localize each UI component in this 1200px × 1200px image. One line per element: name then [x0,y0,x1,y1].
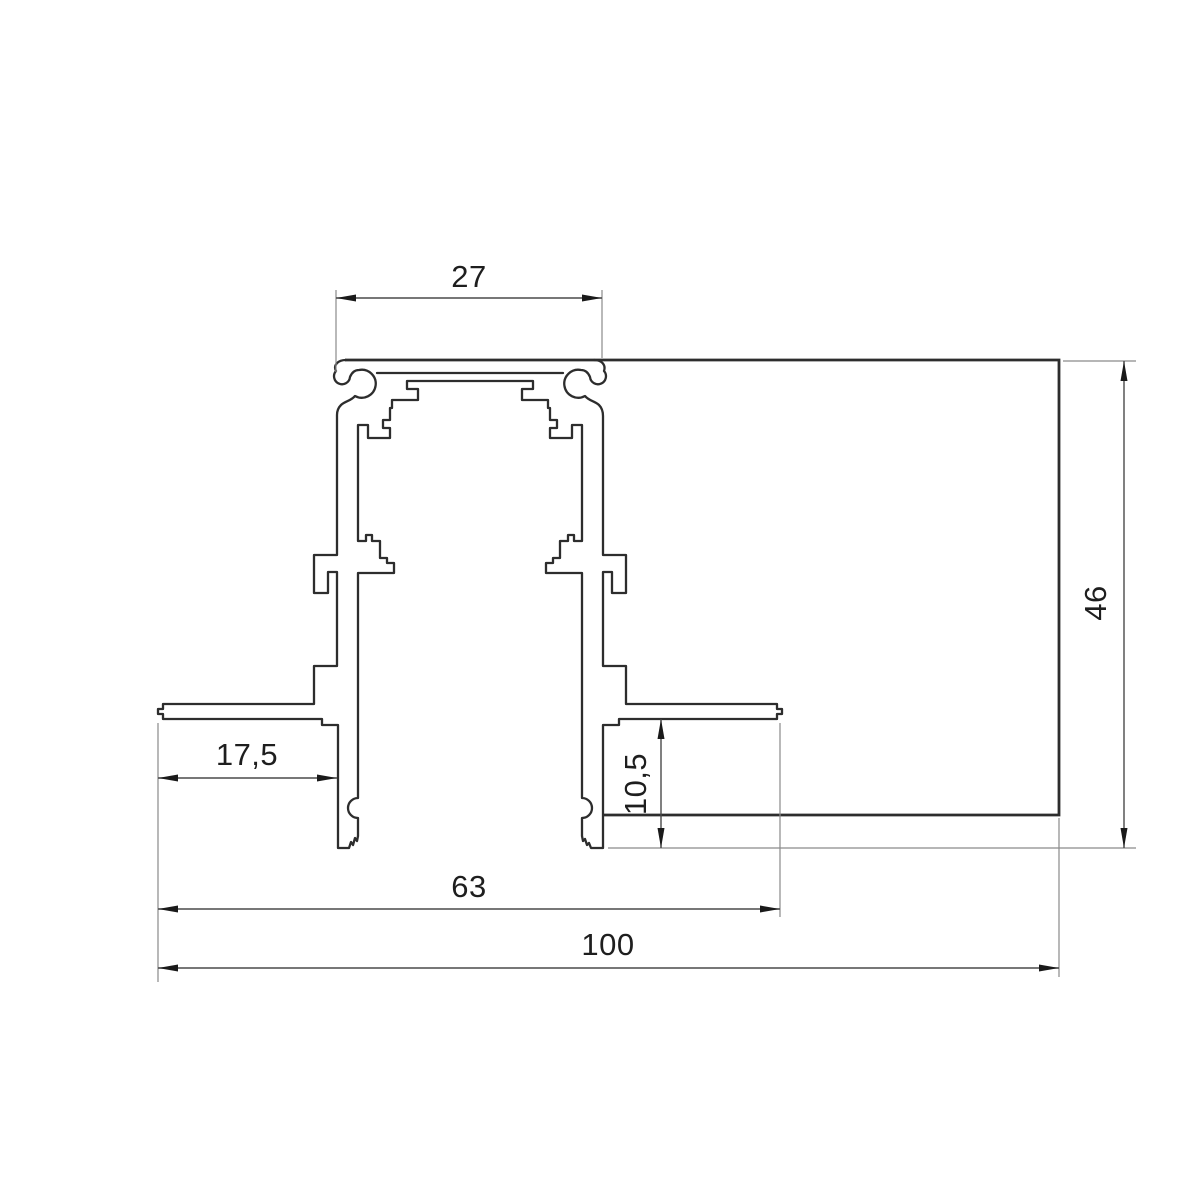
dimension-recess-depth: 10,5 [618,719,665,848]
arrowhead-63-right [760,906,780,913]
arrowhead-100-right [1039,965,1059,972]
dim-27-label: 27 [451,259,486,294]
dim-17-5-label: 17,5 [216,737,278,772]
extension-lines [158,290,1136,982]
arrowhead-10-5-top [658,719,665,739]
dim-46-label: 46 [1078,585,1113,620]
arrowhead-27-right [582,295,602,302]
dimension-track-width: 27 [336,259,602,302]
arrowhead-17-5-right [317,775,337,782]
arrowhead-46-bottom [1121,828,1128,848]
arrowhead-10-5-bottom [658,828,665,848]
dimension-opening-width: 63 [158,869,780,913]
arrowhead-27-left [336,295,356,302]
dim-63-label: 63 [451,869,486,904]
arrowhead-17-5-left [158,775,178,782]
technical-drawing-canvas: 27 46 17,5 10,5 63 100 [0,0,1200,1200]
arrowhead-63-left [158,906,178,913]
top-plate-and-box-outline [345,360,1059,815]
dimension-overall-width: 100 [158,927,1059,972]
dimension-overall-height: 46 [1078,361,1128,848]
arrowhead-46-top [1121,361,1128,381]
dim-10-5-label: 10,5 [618,753,653,815]
profile-outline-path [158,360,782,848]
profile-cross-section-drawing: 27 46 17,5 10,5 63 100 [0,0,1200,1200]
dimension-flange-offset: 17,5 [158,737,337,782]
dim-100-label: 100 [581,927,634,962]
arrowhead-100-left [158,965,178,972]
